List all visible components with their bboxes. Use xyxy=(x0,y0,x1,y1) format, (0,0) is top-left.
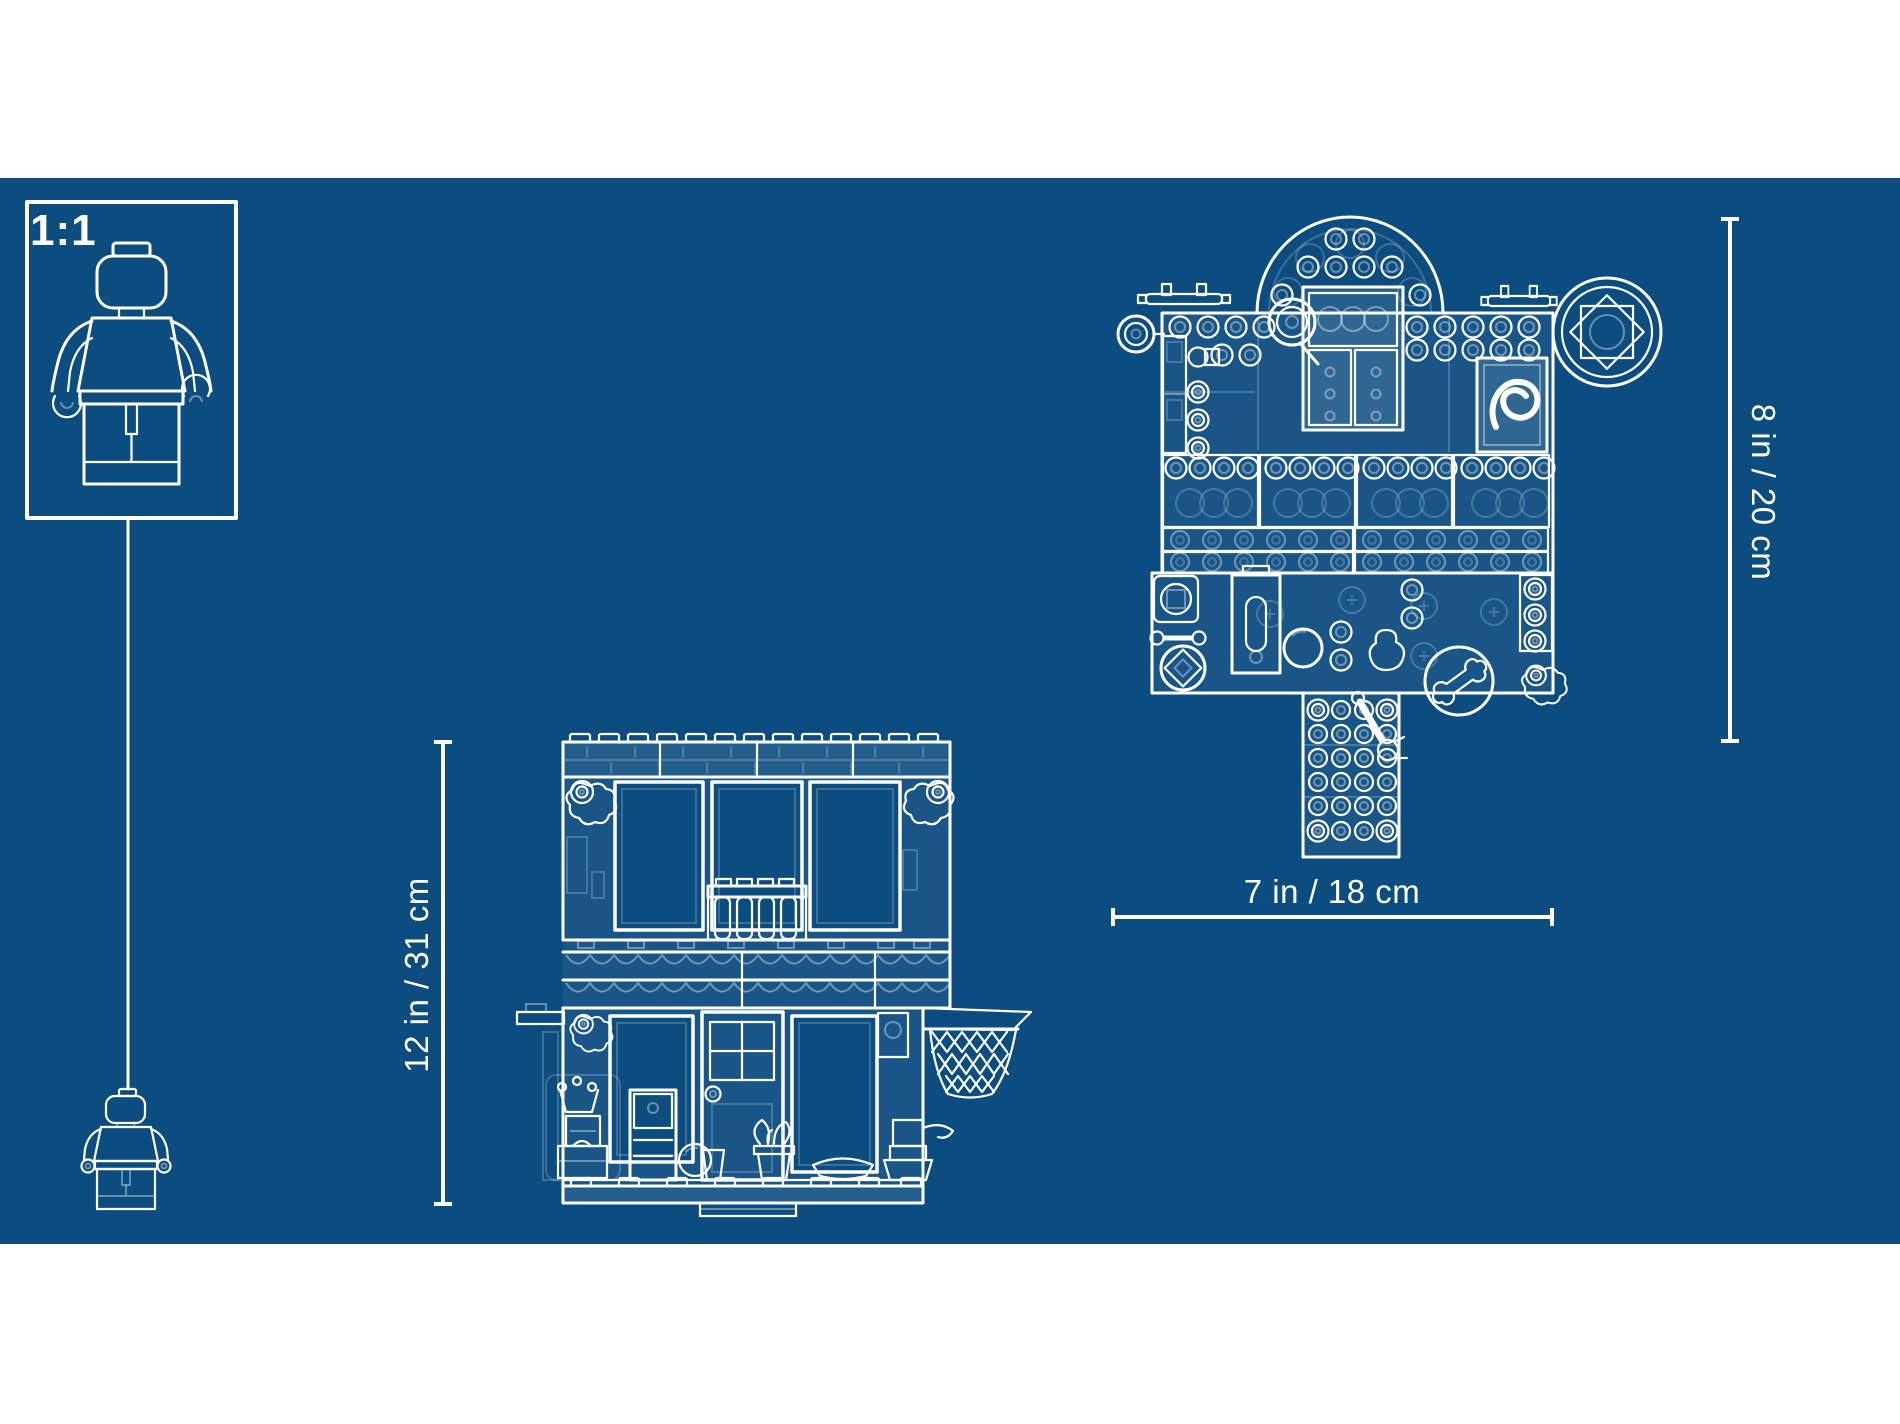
pretzel-tile-icon xyxy=(1477,358,1547,452)
antenna-icon xyxy=(1481,286,1556,306)
minifigure-outline-large xyxy=(52,243,211,484)
roof-hatch xyxy=(1303,287,1403,430)
antenna-icon xyxy=(1138,284,1230,304)
scale-ratio-label: 1:1 xyxy=(30,206,97,256)
ground-window-right xyxy=(792,1016,877,1172)
base-width-label: 7 in / 18 cm xyxy=(1244,873,1421,911)
basketball-hoop-icon xyxy=(923,1008,1031,1098)
blueprint-page: 1:1 12 in / 31 cm 7 in / 18 cm 8 in / 20… xyxy=(0,0,1900,1424)
house-front-elevation xyxy=(517,734,1031,1216)
lower-plate xyxy=(1303,692,1407,857)
front-height-dimension-line xyxy=(434,742,452,1204)
top-height-dimension-line xyxy=(1721,219,1739,741)
side-awning xyxy=(517,1012,564,1024)
set-top-plan xyxy=(1118,217,1661,857)
front-height-label: 12 in / 31 cm xyxy=(398,877,436,1072)
rosette-dial-icon xyxy=(1553,278,1661,386)
minifigure-outline-small xyxy=(82,1089,171,1209)
telescope-icon xyxy=(1118,316,1164,352)
top-height-label: 8 in / 20 cm xyxy=(1744,404,1782,581)
upper-windows xyxy=(615,782,900,930)
blueprint-line-art xyxy=(0,0,1900,1424)
